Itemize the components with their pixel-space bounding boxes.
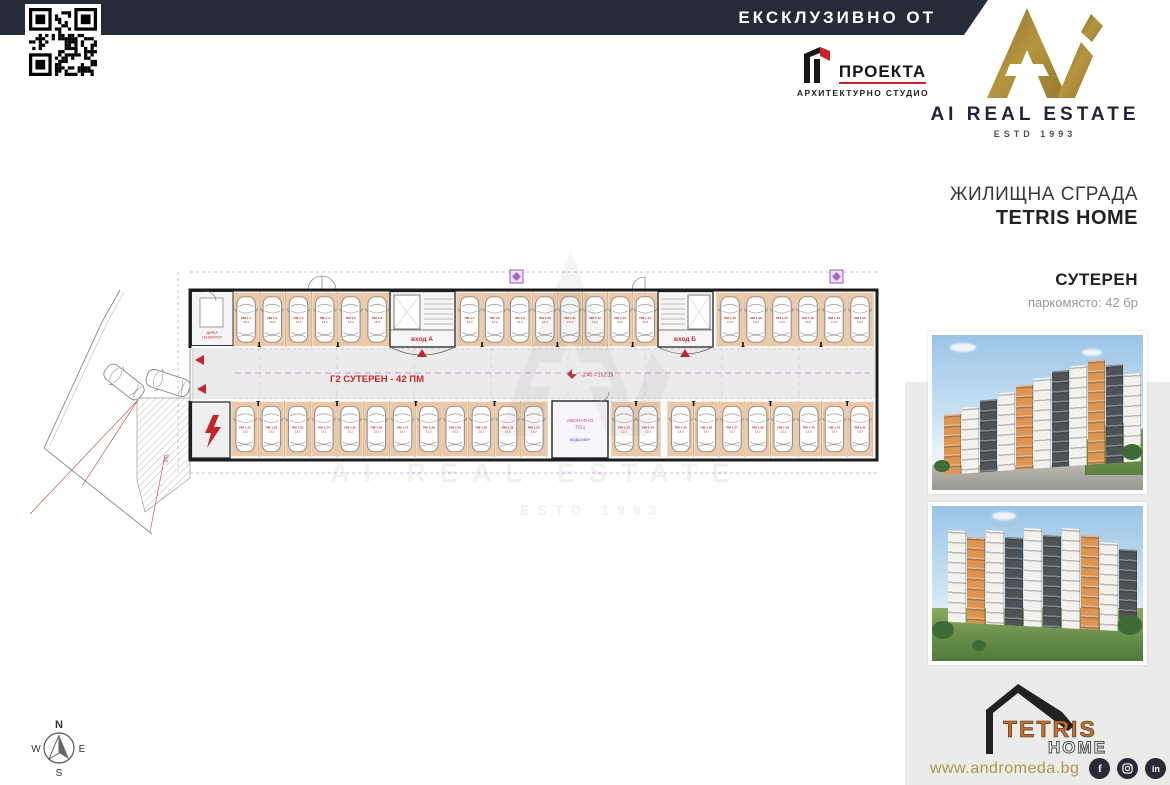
- facebook-icon[interactable]: f: [1089, 758, 1110, 779]
- parking-stall: ПМ 1.1613.2: [744, 293, 768, 346]
- building-render-1: [928, 331, 1147, 494]
- parking-stall: ПМ 1.1713.2: [770, 293, 794, 346]
- stall-area: 13.2: [805, 320, 811, 324]
- stall-area: 13.2: [322, 320, 328, 324]
- parking-stall: ПМ 1.2113.2: [233, 402, 258, 456]
- stall-area: 13.2: [755, 429, 761, 433]
- parking-stall: ПМ 1.1913.2: [822, 293, 846, 346]
- parking-stall: ПМ 1.313.2: [286, 293, 311, 346]
- stall-area: 13.2: [727, 320, 733, 324]
- stall-area: 13.2: [347, 429, 353, 433]
- floor-subtitle: паркомясто: 42 бр: [898, 295, 1138, 310]
- building-render-2: [928, 502, 1147, 665]
- stall-area: 13.2: [373, 429, 379, 433]
- facade-column: [1106, 364, 1123, 463]
- facade-column: [1043, 535, 1061, 628]
- parking-stall: ПМ 1.2313.2: [285, 402, 310, 456]
- facade-column: [1100, 542, 1118, 631]
- stall-area: 13.2: [295, 429, 301, 433]
- stall-area: 13.2: [243, 320, 249, 324]
- parking-stall: ПМ 1.2713.2: [390, 402, 415, 456]
- parking-stall: ПМ 1.2613.2: [364, 402, 389, 456]
- parking-stall: ПМ 1.213.2: [260, 293, 285, 346]
- stall-area: 13.2: [452, 429, 458, 433]
- facade-column: [1070, 365, 1087, 466]
- compass-n: N: [55, 719, 63, 731]
- facade-column: [986, 530, 1004, 625]
- parking-stall: ПМ 1.113.2: [234, 293, 259, 346]
- project-name: TETRIS HOME: [898, 207, 1138, 230]
- facade-column: [1005, 537, 1023, 626]
- watermark-text: AI REAL ESTATE: [330, 458, 744, 489]
- parking-stall: ПМ 1.3713.2: [720, 402, 744, 456]
- facade-column: [998, 392, 1015, 471]
- plan-title: Г2 СУТЕРЕН - 42 ПМ: [330, 374, 424, 385]
- tetris-home-word: HOME: [1048, 738, 1107, 757]
- electrical-room: [192, 402, 231, 458]
- parking-stall: ПМ 1.2213.2: [259, 402, 284, 456]
- stall-area: 13.2: [779, 320, 785, 324]
- instagram-icon[interactable]: [1117, 758, 1138, 779]
- linkedin-icon[interactable]: in: [1145, 758, 1166, 779]
- stall-area: 13.2: [806, 429, 812, 433]
- brand-name: AI REAL ESTATE: [912, 104, 1158, 126]
- parking-stall: ПМ 1.2013.2: [848, 293, 872, 346]
- exclusive-banner-label: ЕКСКЛУЗИВНО ОТ: [738, 8, 936, 28]
- tetris-home-logo: TETRIS HOME: [972, 680, 1118, 758]
- facade-column: [962, 406, 979, 473]
- parking-stall: ПМ 1.1513.2: [718, 293, 742, 346]
- parking-stall: ПМ 1.2813.2: [417, 402, 442, 456]
- qr-code: [25, 4, 101, 80]
- facade-column: [1088, 360, 1105, 465]
- facade-column: [1024, 528, 1042, 627]
- stall-area: 13.2: [321, 429, 327, 433]
- parking-stall: ПМ 1.2913.2: [443, 402, 468, 456]
- generator-room: ДИЗЕЛ ГЕНЕРАТОР: [192, 292, 234, 346]
- stall-area: 13.2: [753, 320, 759, 324]
- parking-stall: ПМ 1.613.2: [365, 293, 390, 346]
- stall-area: 13.2: [295, 320, 301, 324]
- parking-stall: ПМ 1.513.2: [339, 293, 364, 346]
- parking-stall: ПМ 1.413.2: [312, 293, 337, 346]
- parking-stall: ПМ 1.1813.2: [796, 293, 820, 346]
- facade-column: [967, 537, 985, 624]
- stall-area: 13.2: [678, 429, 684, 433]
- entrance-a-label: вход А: [411, 336, 433, 343]
- compass-icon: N E S W: [28, 708, 90, 780]
- qr-code-icon: [29, 8, 97, 76]
- parking-stall: ПМ 1.3813.2: [746, 402, 770, 456]
- parking-stall: ПМ 1.2513.2: [338, 402, 363, 456]
- watermark-estd: ESTD 1993: [520, 502, 664, 518]
- stall-area: 13.2: [857, 320, 863, 324]
- stall-area: 13.2: [268, 429, 274, 433]
- compass-e: E: [79, 744, 86, 755]
- compass-w: W: [31, 744, 41, 755]
- entrance-b-label: вход Б: [674, 336, 696, 343]
- render2-building: [948, 522, 1137, 632]
- floor-title: СУТЕРЕН: [898, 270, 1138, 290]
- footer: www.andromeda.bg f in: [930, 758, 1158, 779]
- facade-column: [948, 530, 966, 623]
- website-link[interactable]: www.andromeda.bg: [930, 760, 1079, 778]
- project-info: ЖИЛИЩНА СГРАДА TETRIS HOME СУТЕРЕН парко…: [898, 184, 1138, 310]
- parking-stall: ПМ 1.4213.2: [848, 402, 872, 456]
- facade-column: [1016, 385, 1033, 470]
- stall-area: 13.2: [242, 429, 248, 433]
- parking-stall: ПМ 1.2413.2: [312, 402, 337, 456]
- facade-column: [1062, 528, 1080, 629]
- parking-stall: ПМ 1.4113.2: [822, 402, 846, 456]
- parking-stall: ПМ 1.3913.2: [771, 402, 795, 456]
- compass-s: S: [56, 768, 63, 779]
- stall-area: 13.2: [857, 429, 863, 433]
- building-type: ЖИЛИЩНА СГРАДА: [898, 184, 1138, 206]
- facade-column: [1034, 377, 1051, 468]
- ai-real-estate-logo-icon: [935, 2, 1135, 102]
- facade-column: [980, 399, 997, 472]
- stall-area: 13.2: [780, 429, 786, 433]
- floor-plan: 5% ПМ 1.113.2ПМ 1.213.2ПМ 1.313.2ПМ 1.41…: [20, 230, 910, 560]
- stall-area: 13.2: [269, 320, 275, 324]
- generator-label-1: ДИЗЕЛ: [206, 331, 217, 335]
- stall-area: 13.2: [348, 320, 354, 324]
- car-icon: [143, 365, 192, 401]
- stall-area: 13.2: [374, 320, 380, 324]
- exclusive-banner: ЕКСКЛУЗИВНО ОТ: [0, 0, 988, 35]
- stall-area: 13.2: [400, 429, 406, 433]
- stall-area: 13.2: [831, 429, 837, 433]
- generator-label-2: ГЕНЕРАТОР: [202, 336, 222, 340]
- facade-column: [1081, 535, 1099, 630]
- proekta-building-icon: [800, 44, 834, 84]
- stall-area: 13.2: [831, 320, 837, 324]
- stall-area: 13.2: [729, 429, 735, 433]
- stall-area: 13.2: [426, 429, 432, 433]
- parking-stall: ПМ 1.4013.2: [797, 402, 821, 456]
- stall-area: 13.2: [467, 320, 473, 324]
- facade-column: [1052, 370, 1069, 467]
- render1-building: [944, 357, 1141, 475]
- stall-area: 13.2: [703, 429, 709, 433]
- brand-block: AI REAL ESTATE ESTD 1993: [912, 2, 1158, 139]
- watermark-logo-icon: [478, 233, 673, 448]
- parking-stall: ПМ 1.3613.2: [694, 402, 718, 456]
- brand-estd: ESTD 1993: [912, 129, 1158, 139]
